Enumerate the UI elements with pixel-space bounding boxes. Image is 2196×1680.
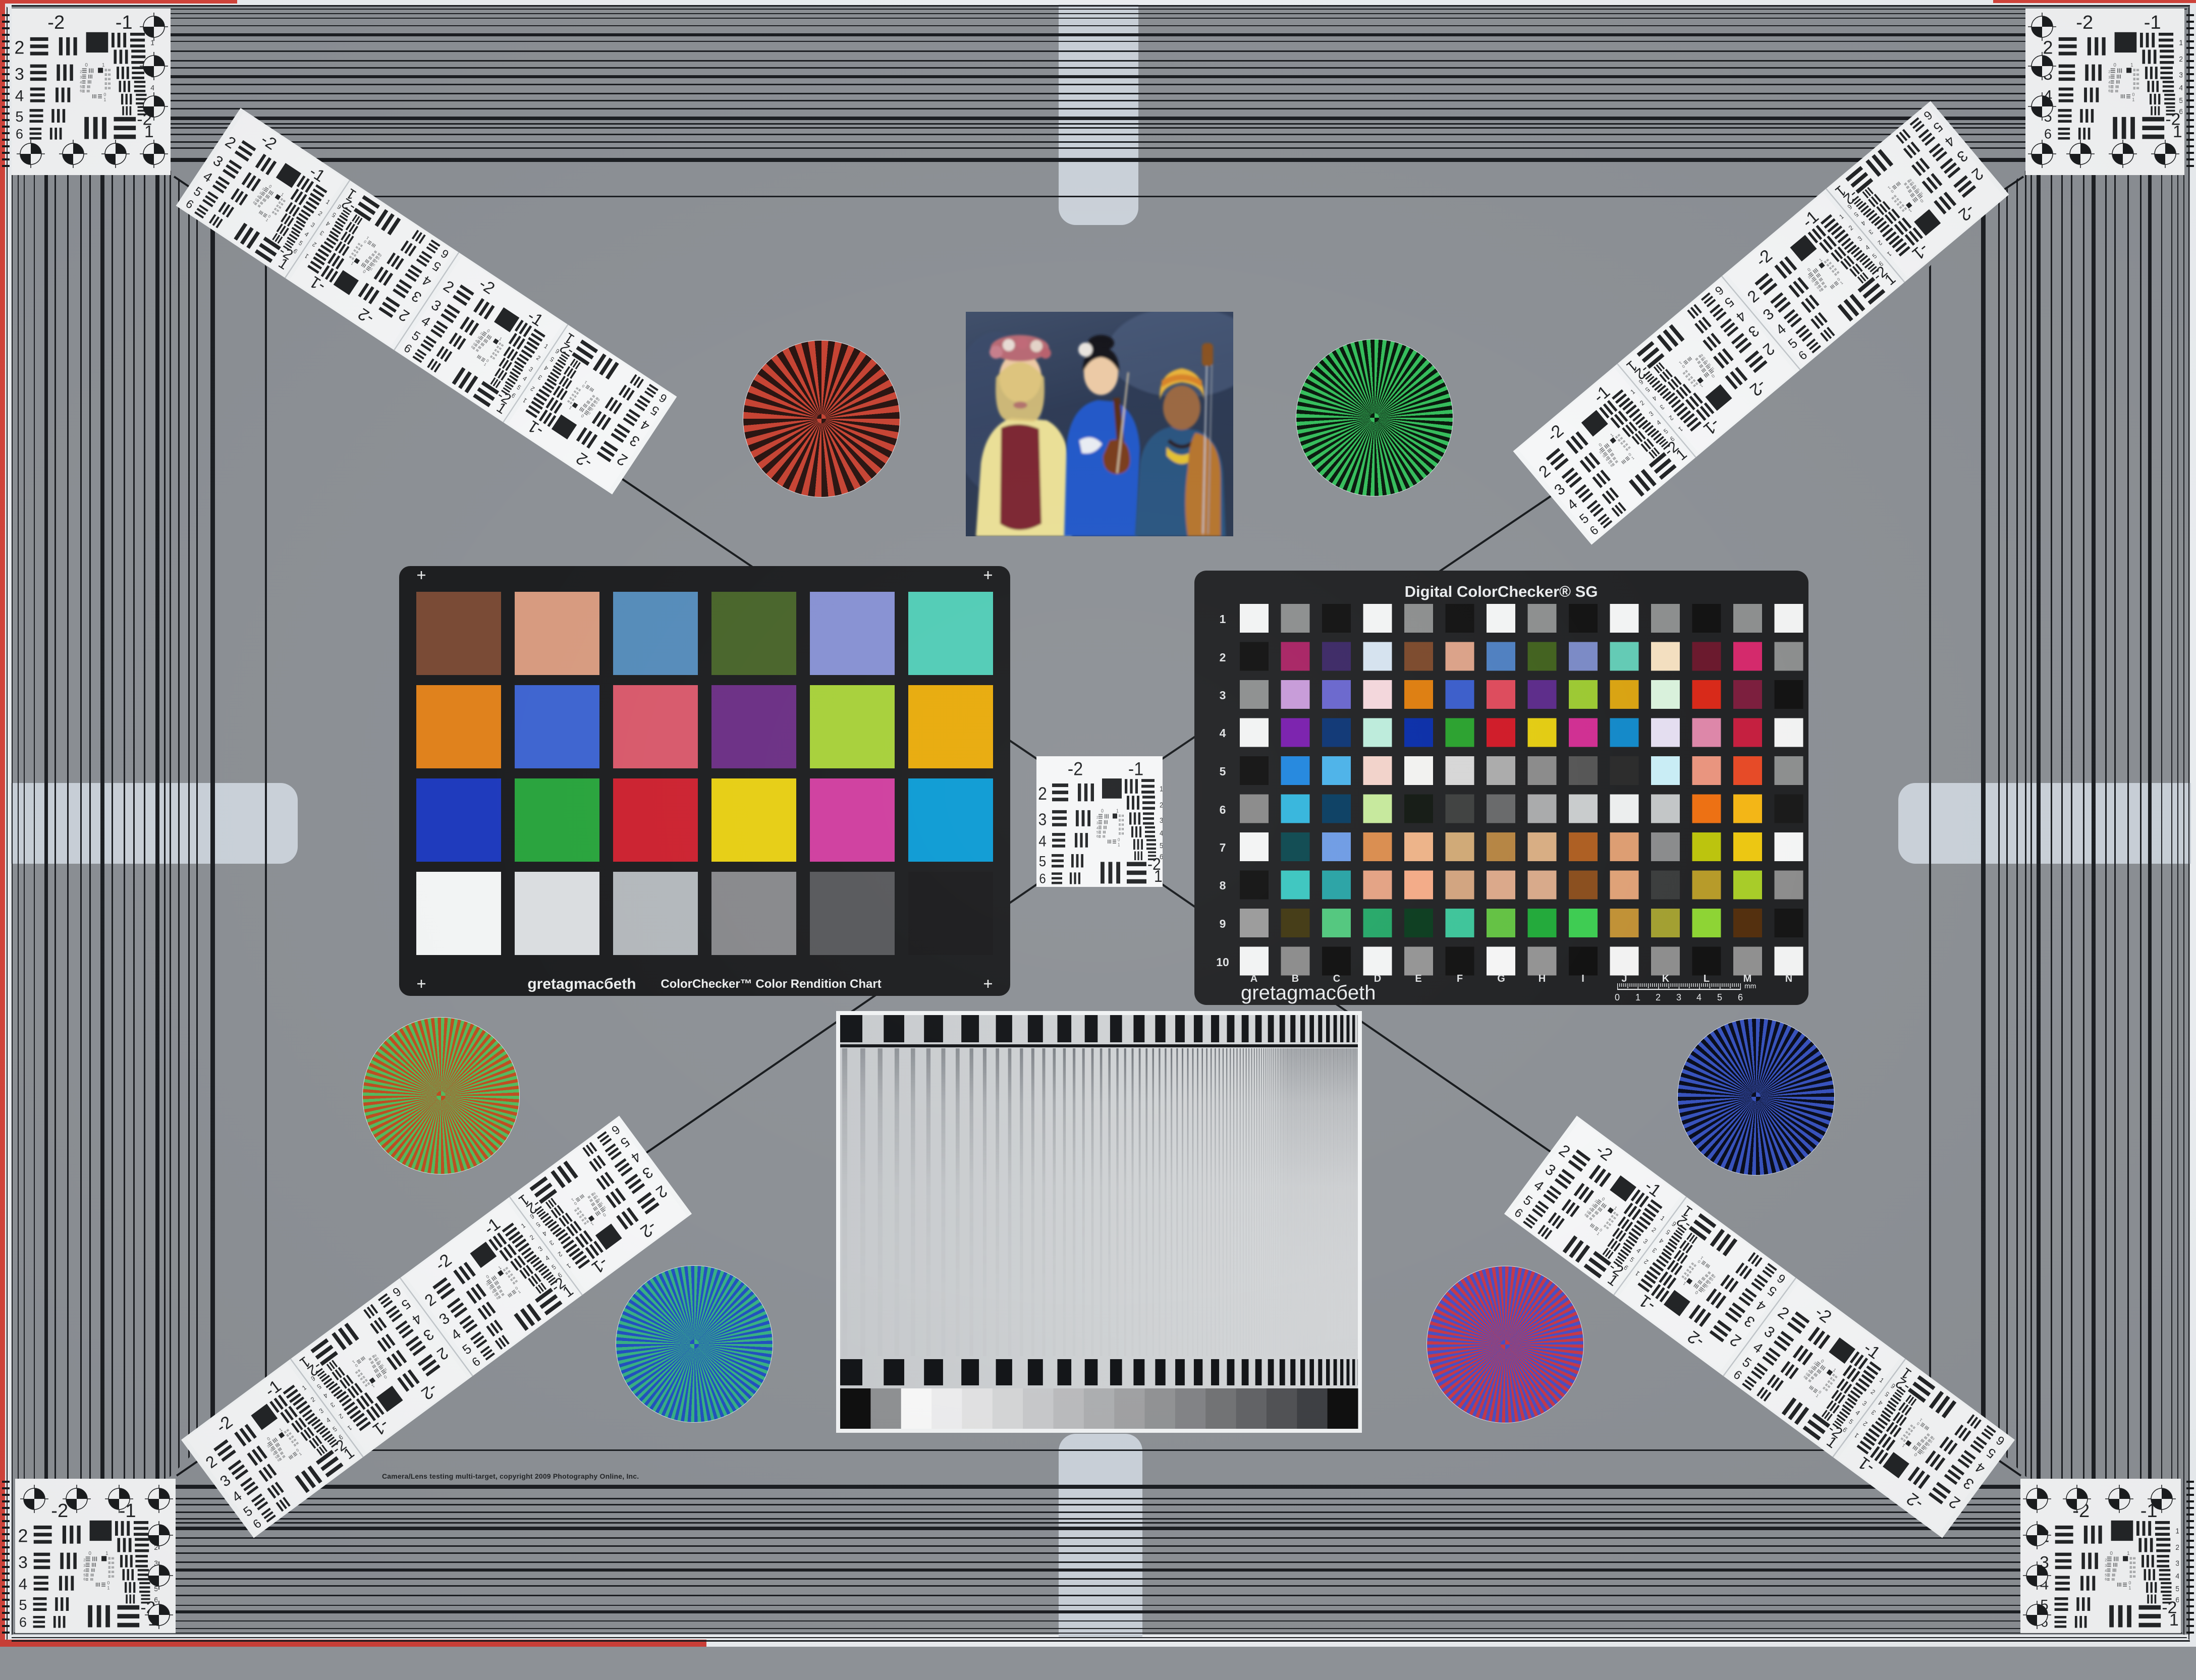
- svg-text:4: 4: [1696, 992, 1701, 1002]
- svg-text:5: 5: [1220, 765, 1226, 778]
- svg-text:6: 6: [1738, 992, 1743, 1002]
- svg-text:L: L: [1704, 973, 1710, 984]
- svg-text:N: N: [1785, 973, 1792, 984]
- svg-text:5: 5: [1717, 992, 1722, 1002]
- svg-text:G: G: [1497, 973, 1505, 984]
- svg-text:7: 7: [1220, 841, 1226, 854]
- svg-text:Digital ColorChecker® SG: Digital ColorChecker® SG: [1405, 583, 1598, 600]
- svg-text:3: 3: [1676, 992, 1681, 1002]
- svg-text:E: E: [1415, 973, 1421, 984]
- svg-text:ColorChecker™ Color Rendition: ColorChecker™ Color Rendition Chart: [661, 977, 881, 991]
- svg-text:6: 6: [1220, 803, 1226, 816]
- svg-text:2: 2: [1656, 992, 1661, 1002]
- svg-text:gretagmacбeth: gretagmacбeth: [527, 976, 636, 992]
- svg-text:1: 1: [1635, 992, 1640, 1002]
- svg-text:I: I: [1581, 973, 1584, 984]
- svg-text:9: 9: [1220, 917, 1226, 930]
- svg-text:1: 1: [1220, 612, 1226, 626]
- svg-text:J: J: [1621, 973, 1627, 984]
- svg-text:mm: mm: [1744, 982, 1756, 990]
- svg-text:3: 3: [1220, 689, 1226, 702]
- svg-text:0: 0: [1615, 992, 1620, 1002]
- svg-text:K: K: [1662, 973, 1670, 984]
- svg-text:10: 10: [1216, 956, 1229, 969]
- svg-text:F: F: [1457, 973, 1463, 984]
- svg-text:8: 8: [1220, 879, 1226, 892]
- svg-text:gretagmacбeth: gretagmacбeth: [1241, 982, 1376, 1004]
- svg-text:4: 4: [1220, 726, 1226, 740]
- svg-text:2: 2: [1220, 651, 1226, 664]
- svg-text:H: H: [1539, 973, 1546, 984]
